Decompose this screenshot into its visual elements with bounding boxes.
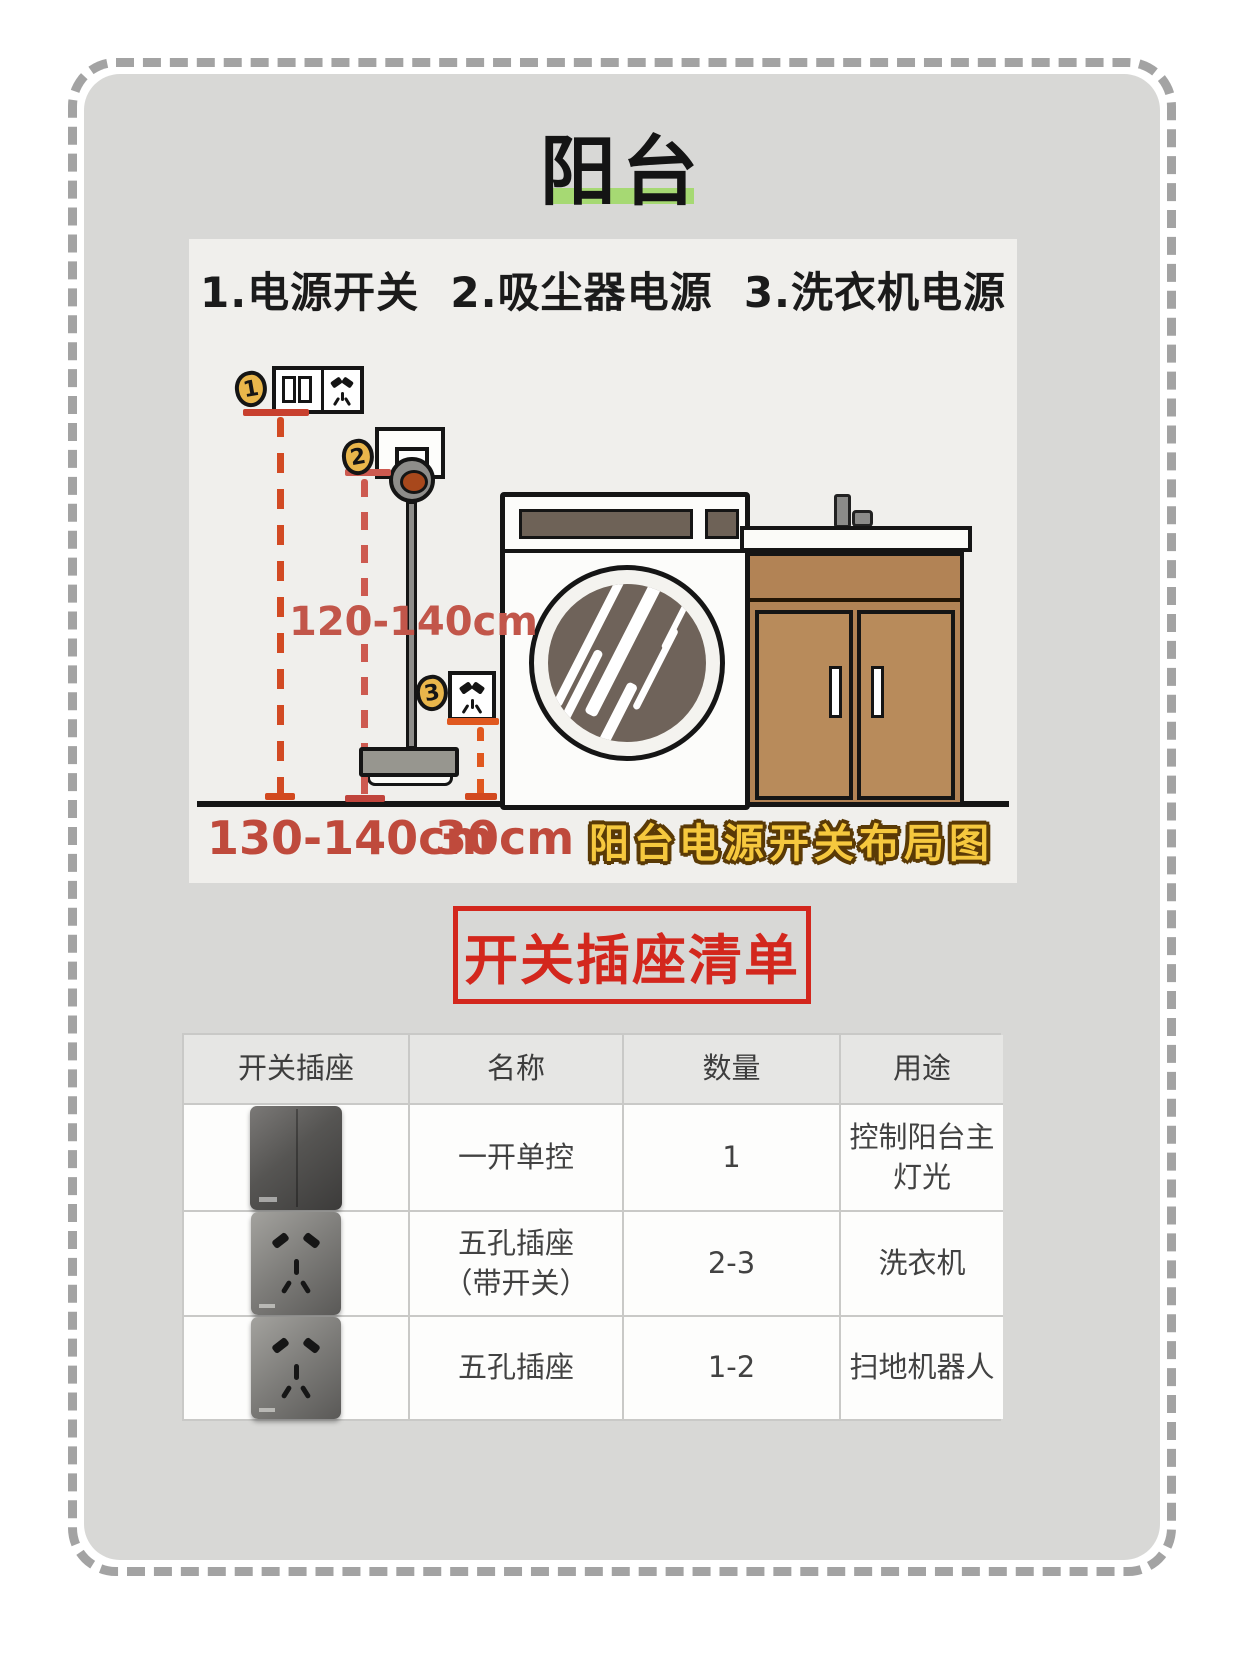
table-row-name-cell: 五孔插座 （带开关） xyxy=(410,1212,624,1317)
badge-3: 3 xyxy=(413,672,451,713)
badge-1: 1 xyxy=(232,368,270,409)
washer-door xyxy=(529,565,725,761)
five-hole-socket-image xyxy=(251,1212,341,1315)
socket-hole xyxy=(471,699,474,709)
cabinet-door-right xyxy=(857,610,955,800)
table-row-name-cell: 一开单控 xyxy=(410,1105,624,1212)
product-name: 一开单控 xyxy=(458,1138,574,1177)
table-row-product-cell xyxy=(184,1105,410,1212)
cabinet-handle xyxy=(829,666,842,718)
table-row-product-cell xyxy=(184,1212,410,1317)
socket-hole xyxy=(341,376,354,388)
washer-detergent-drawer xyxy=(705,509,739,539)
socket-hole xyxy=(271,1337,290,1355)
low-socket-illustration xyxy=(448,671,496,721)
socket-hole xyxy=(341,392,344,401)
faucet-icon xyxy=(834,494,851,528)
socket-hole xyxy=(462,704,470,714)
socket-hole xyxy=(271,1232,290,1250)
column-header-name: 名称 xyxy=(410,1035,624,1105)
table-row-qty-cell: 2-3 xyxy=(624,1212,841,1317)
table-row-use-cell: 洗衣机 xyxy=(841,1212,1003,1317)
product-name-line2: （带开关） xyxy=(443,1264,588,1303)
socket-hole xyxy=(294,1259,299,1275)
measure-tick xyxy=(265,793,295,800)
layout-diagram-panel: 1.电源开关 2.吸尘器电源 3.洗衣机电源 1 2 3 xyxy=(189,239,1017,883)
measure-dashed-line xyxy=(277,417,284,803)
one-gang-switch-image xyxy=(250,1106,342,1210)
cabinet-handle xyxy=(871,666,884,718)
infographic-page: { "page": { "title": "阳台", "section_titl… xyxy=(0,0,1244,1658)
measure-tick xyxy=(345,795,385,802)
switch-socket-plate-illustration xyxy=(272,366,364,414)
product-name: 五孔插座 xyxy=(458,1224,574,1263)
socket-hole xyxy=(300,1385,312,1400)
socket-hole xyxy=(300,1280,312,1295)
washer-panel-divider xyxy=(505,549,745,553)
measure-tick xyxy=(243,409,309,416)
vacuum-handle-illustration xyxy=(389,457,435,503)
table-row-product-cell xyxy=(184,1317,410,1419)
diagram-caption: 阳台电源开关布局图 xyxy=(589,811,994,869)
socket-hole xyxy=(281,1385,293,1400)
socket-hole xyxy=(475,704,483,714)
vacuum-floor-head-illustration xyxy=(359,747,459,777)
switch-rocker xyxy=(282,376,296,403)
column-header-product: 开关插座 xyxy=(184,1035,410,1105)
five-hole-socket-image xyxy=(251,1317,341,1419)
measure-vacuum-outlet-height: 120-140cm xyxy=(289,599,538,645)
section-title: 开关插座清单 xyxy=(464,916,800,995)
measure-floor-socket-height: 30cm xyxy=(435,811,574,865)
page-title: 阳台 xyxy=(0,110,1244,220)
cabinet-countertop xyxy=(740,526,972,552)
table-row-qty-cell: 1-2 xyxy=(624,1317,841,1419)
cabinet-top-band xyxy=(750,598,960,602)
measure-tick xyxy=(465,793,497,800)
socket-hole xyxy=(294,1364,299,1380)
column-header-qty: 数量 xyxy=(624,1035,841,1105)
drum-streak xyxy=(632,627,679,710)
washer-control-panel xyxy=(519,509,693,539)
product-name: 五孔插座 xyxy=(458,1348,574,1387)
measure-tick xyxy=(447,718,499,725)
section-title-box: 开关插座清单 xyxy=(453,906,811,1004)
socket-hole xyxy=(344,397,351,406)
table-row-qty-cell: 1 xyxy=(624,1105,841,1212)
table-row-name-cell: 五孔插座 xyxy=(410,1317,624,1419)
washer-drum xyxy=(548,584,706,742)
socket-hole xyxy=(471,681,485,694)
laundry-cabinet-illustration xyxy=(746,552,964,806)
table-row-use-cell: 控制阳台主灯光 xyxy=(841,1105,1003,1212)
socket-face-icon xyxy=(324,370,360,410)
socket-hole xyxy=(302,1232,321,1250)
socket-hole xyxy=(302,1337,321,1355)
measure-dashed-line xyxy=(477,727,484,803)
table-row-use-cell: 扫地机器人 xyxy=(841,1317,1003,1419)
column-header-use: 用途 xyxy=(841,1035,1003,1105)
socket-hole xyxy=(281,1280,293,1295)
washing-machine-illustration xyxy=(500,492,750,810)
switch-rocker xyxy=(298,376,312,403)
socket-hole xyxy=(333,397,340,406)
drum-streak xyxy=(661,594,694,650)
faucet-spout-icon xyxy=(852,510,873,527)
switch-socket-table: 开关插座 名称 数量 用途 一开单控 1 控制阳台主灯光 五孔插座 （带开关） … xyxy=(182,1033,1001,1421)
diagram-legend: 1.电源开关 2.吸尘器电源 3.洗衣机电源 xyxy=(189,259,1017,320)
cabinet-door-left xyxy=(755,610,853,800)
